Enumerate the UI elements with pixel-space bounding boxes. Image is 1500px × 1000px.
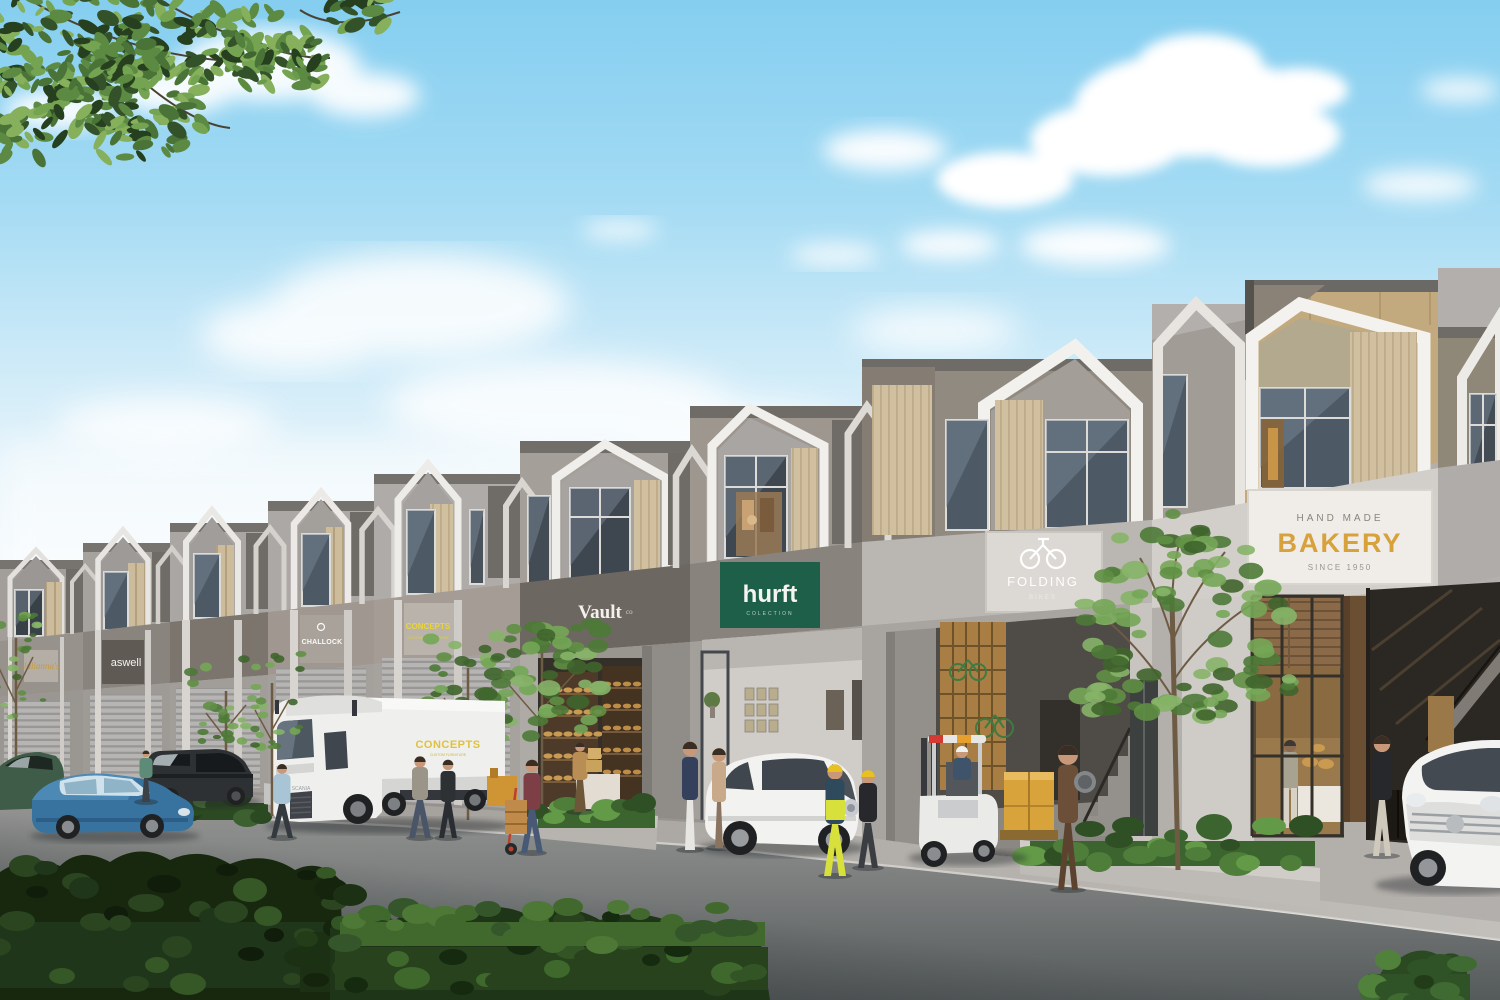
svg-text:CUSTOM FURNITURE: CUSTOM FURNITURE [430,753,467,757]
svg-text:co: co [626,608,633,616]
svg-text:CONCEPTS: CONCEPTS [415,739,480,751]
svg-text:CHALLOCK: CHALLOCK [302,639,343,646]
svg-text:FOLDING: FOLDING [1007,574,1079,589]
svg-text:HAND MADE: HAND MADE [1296,513,1383,524]
svg-text:hurft: hurft [743,581,798,608]
svg-text:aswell: aswell [111,657,142,669]
svg-text:COLECTION: COLECTION [746,611,793,617]
svg-text:SCANIA: SCANIA [292,786,311,792]
svg-text:BIKES: BIKES [1029,595,1057,601]
svg-text:CONCEPTS: CONCEPTS [406,622,451,631]
svg-text:BAKERY: BAKERY [1277,528,1402,558]
svg-text:SINCE 1950: SINCE 1950 [1308,563,1372,572]
